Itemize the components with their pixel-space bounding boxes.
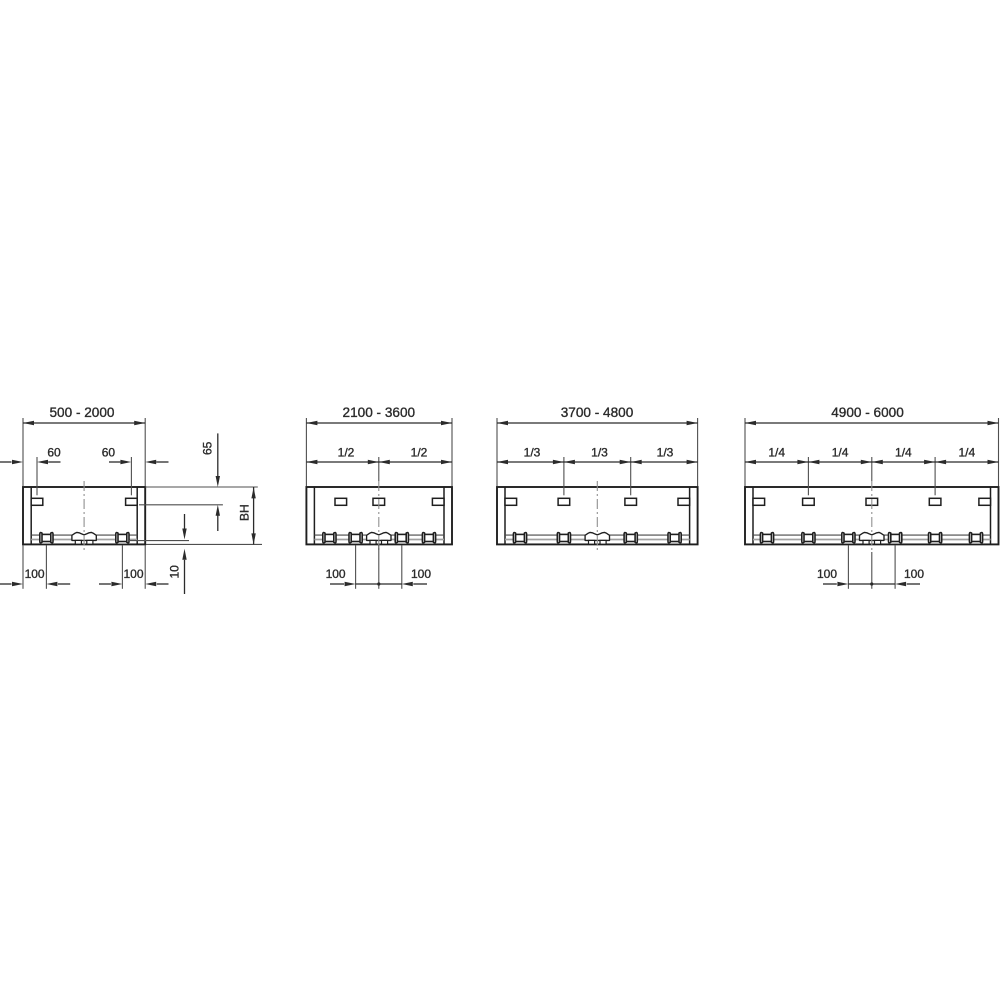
svg-text:100: 100 [904,567,924,581]
svg-text:10: 10 [167,565,181,579]
svg-text:60: 60 [47,446,61,460]
svg-text:1/4: 1/4 [768,446,785,460]
svg-text:BH: BH [237,504,251,521]
svg-text:100: 100 [123,567,143,581]
svg-text:1/3: 1/3 [524,446,541,460]
svg-text:1/3: 1/3 [591,446,608,460]
svg-text:1/2: 1/2 [338,446,355,460]
svg-text:60: 60 [102,446,116,460]
svg-text:1/4: 1/4 [832,446,849,460]
svg-text:100: 100 [25,567,45,581]
svg-text:1/4: 1/4 [895,446,912,460]
svg-text:100: 100 [817,567,837,581]
svg-text:65: 65 [201,441,215,455]
svg-text:100: 100 [326,567,346,581]
svg-text:4900 - 6000: 4900 - 6000 [831,405,904,420]
svg-text:100: 100 [411,567,431,581]
svg-text:3700 - 4800: 3700 - 4800 [561,405,634,420]
svg-text:500 - 2000: 500 - 2000 [49,405,114,420]
svg-text:1/4: 1/4 [958,446,975,460]
svg-text:1/3: 1/3 [657,446,674,460]
svg-text:2100 - 3600: 2100 - 3600 [343,405,416,420]
svg-text:1/2: 1/2 [411,446,428,460]
